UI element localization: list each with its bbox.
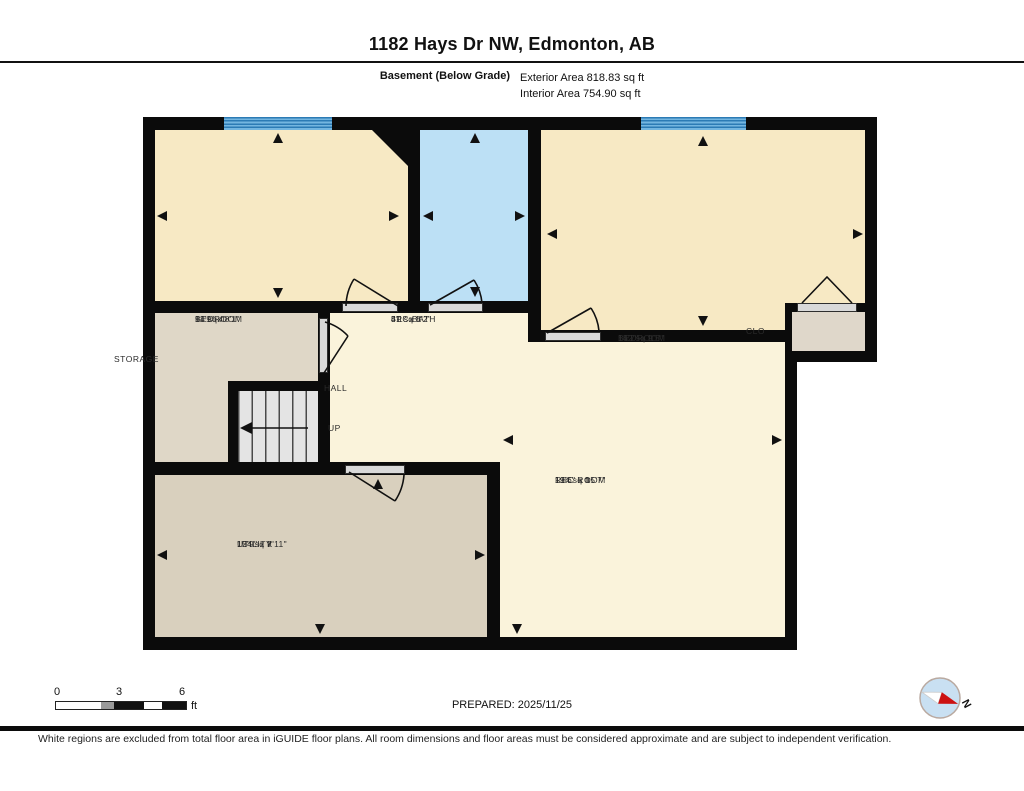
- scale-tick-0: 0: [54, 686, 60, 698]
- floor-plan: BEDROOM 11'9" x 8'1" 94 sq ft 3PC BATH 5…: [143, 117, 877, 650]
- floor-subtitle: Basement (Below Grade) Exterior Area 818…: [0, 70, 1024, 102]
- floor-label: Basement (Below Grade): [380, 70, 510, 82]
- room-bedroom-1: [155, 130, 408, 301]
- room-bedroom-2: [541, 130, 865, 330]
- door-threshold-bedroom-2: [545, 332, 601, 341]
- page-title: 1182 Hays Dr NW, Edmonton, AB: [0, 34, 1024, 55]
- prepared-date: PREPARED: 2025/11/25: [0, 699, 1024, 711]
- door-threshold-storage: [319, 318, 328, 373]
- interior-area: Interior Area 754.90 sq ft: [520, 86, 644, 102]
- room-bath: [420, 130, 528, 301]
- door-threshold-bedroom-1: [342, 303, 398, 312]
- exterior-area: Exterior Area 818.83 sq ft: [520, 70, 644, 86]
- compass-icon: [916, 674, 964, 722]
- door-threshold-utility: [345, 465, 405, 474]
- room-closet: [792, 312, 865, 351]
- compass: N: [916, 674, 964, 722]
- door-threshold-bath: [428, 303, 483, 312]
- floor-areas: Exterior Area 818.83 sq ft Interior Area…: [520, 70, 644, 102]
- disclaimer-text: White regions are excluded from total fl…: [38, 733, 998, 745]
- footer-divider: [0, 726, 1024, 731]
- window-bedroom-1: [224, 117, 332, 130]
- window-bedroom-2: [641, 117, 746, 130]
- staircase: [238, 391, 318, 462]
- scale-tick-6: 6: [179, 686, 185, 698]
- floor-plan-page: 1182 Hays Dr NW, Edmonton, AB Basement (…: [0, 0, 1024, 791]
- room-utility: [155, 475, 487, 637]
- door-threshold-closet: [797, 303, 857, 312]
- title-divider: [0, 61, 1024, 63]
- scale-tick-3: 3: [116, 686, 122, 698]
